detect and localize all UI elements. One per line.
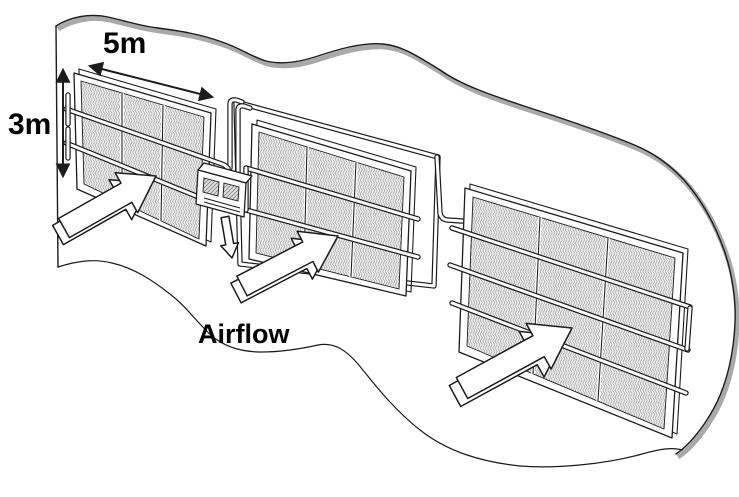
panel-height-label: 3m (8, 108, 51, 141)
down-arrow-icon (221, 216, 239, 258)
fog-collector-diagram: 5m 3m Airflow (0, 0, 739, 497)
panel-width-label: 5m (103, 27, 146, 60)
airflow-label: Airflow (198, 319, 290, 349)
diagram-canvas: 5m 3m Airflow (0, 0, 739, 497)
device-riser-pipes (230, 100, 250, 172)
fog-collector-panel-3 (450, 184, 690, 438)
